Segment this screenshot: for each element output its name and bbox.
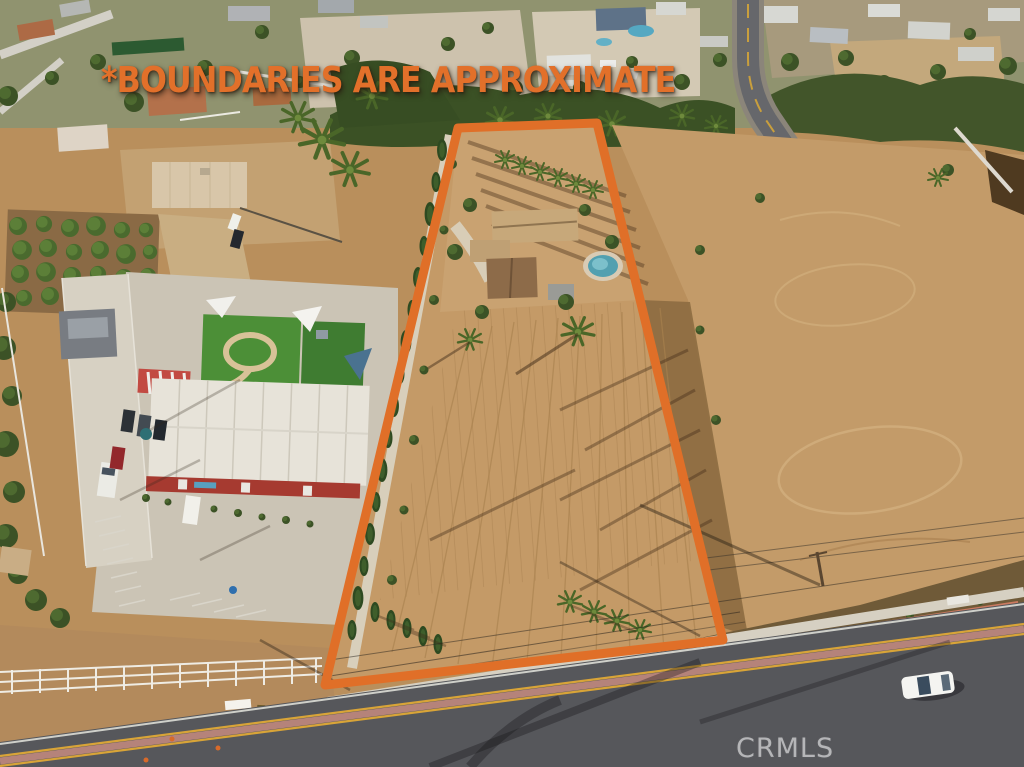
- neighbor-pool: [628, 25, 654, 37]
- retail-building: [146, 378, 370, 499]
- boundaries-disclaimer-text: *BOUNDARIES ARE APPROXIMATE: [101, 60, 717, 101]
- turf-play-area: [201, 314, 302, 391]
- crmls-watermark: CRMLS: [736, 733, 834, 764]
- listing-photo: *BOUNDARIES ARE APPROXIMATE CRMLS: [0, 0, 1024, 767]
- aerial-photo: [0, 0, 1024, 767]
